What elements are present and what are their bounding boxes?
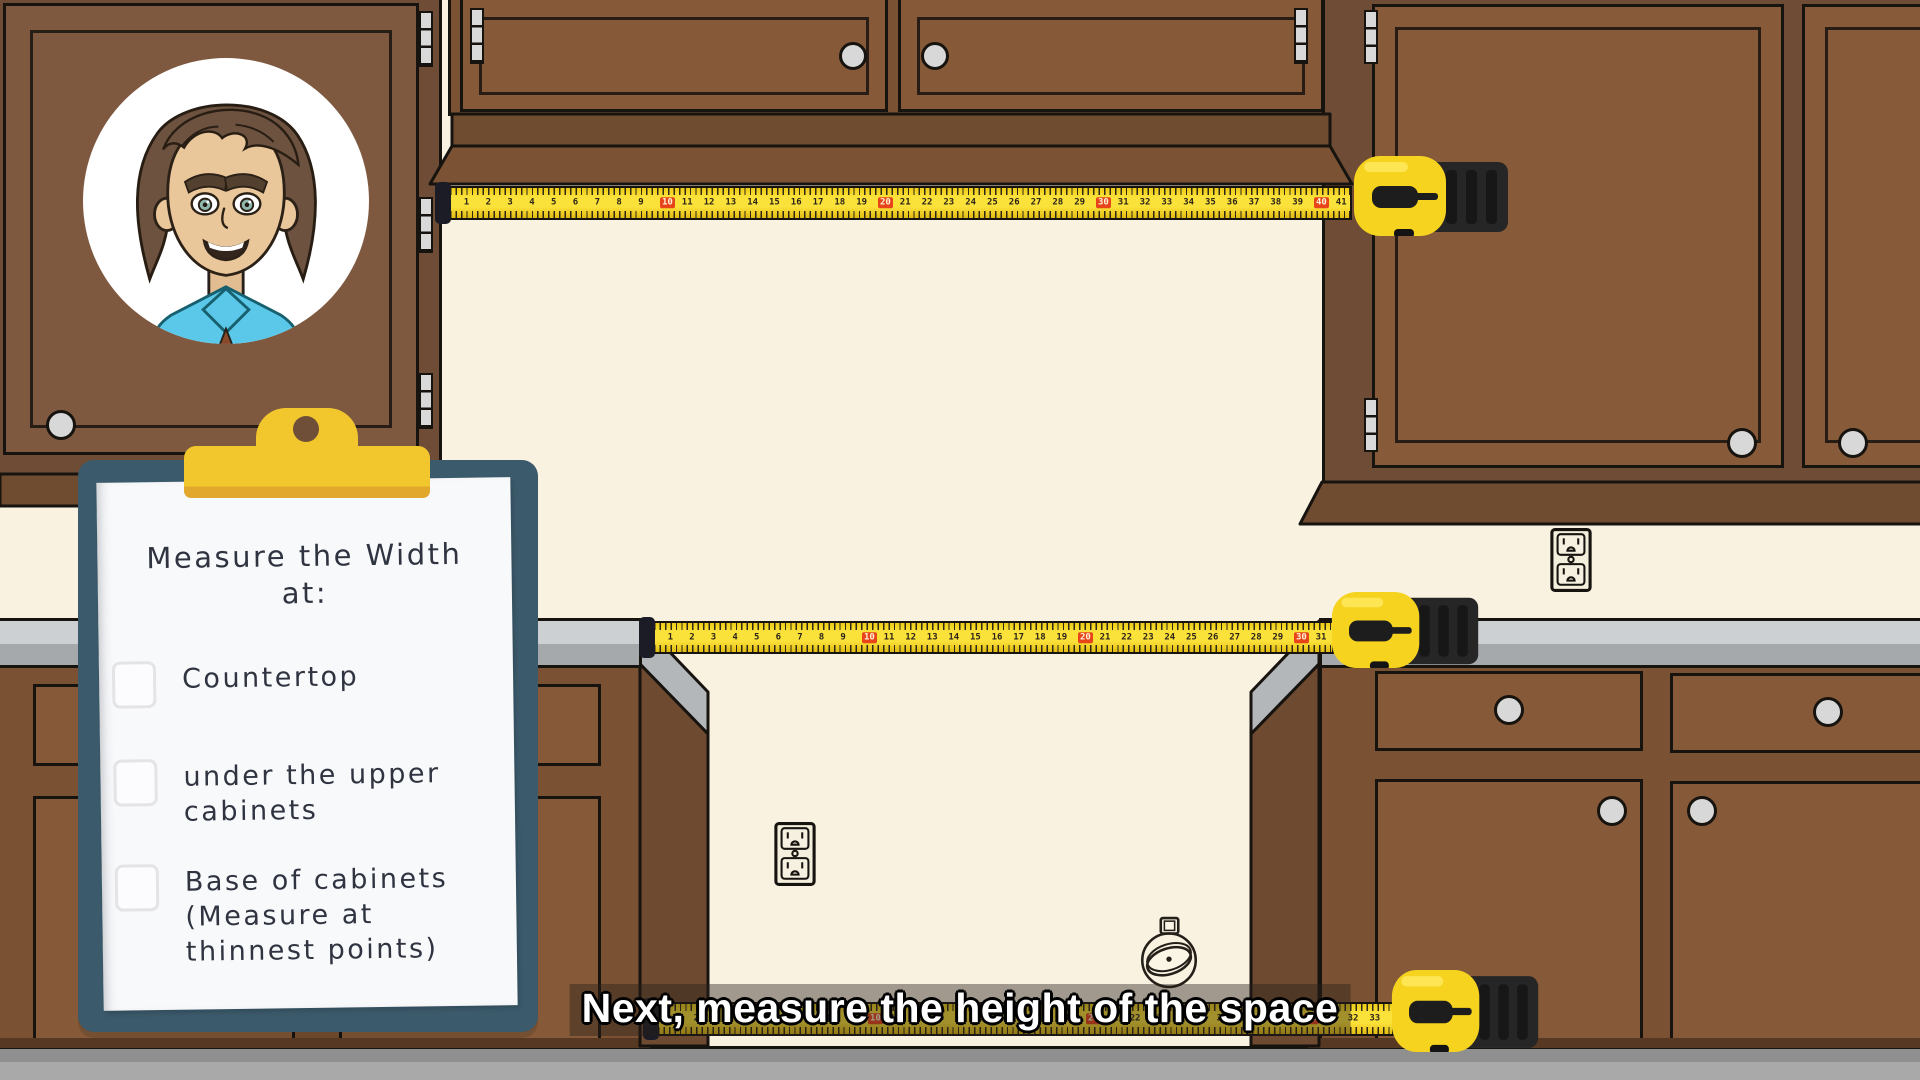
checklist-item-label: Countertop — [182, 658, 360, 696]
tape-number: 33 — [1369, 1014, 1380, 1023]
tape-number: 37 — [1249, 198, 1260, 207]
tape-number: 25 — [1186, 633, 1197, 642]
tape-coil-icon — [1136, 916, 1202, 990]
tape-number: 16 — [791, 198, 802, 207]
tape-number: 4 — [529, 198, 534, 207]
tape-hook — [435, 182, 451, 224]
tape-number: 24 — [965, 198, 976, 207]
tape-number: 17 — [813, 198, 824, 207]
checklist-item-countertop: Countertop — [112, 658, 360, 708]
tape-number: 12 — [905, 633, 916, 642]
tape-number: 19 — [856, 198, 867, 207]
tape-number: 5 — [754, 633, 759, 642]
tape-number: 2 — [486, 198, 491, 207]
avatar — [83, 58, 369, 344]
tape-number: 15 — [970, 633, 981, 642]
tape-number: 20 — [1078, 632, 1093, 643]
tape-number: 20 — [878, 197, 893, 208]
tape-number: 21 — [900, 198, 911, 207]
tape-body — [1330, 592, 1482, 668]
tape-hook — [639, 617, 655, 658]
tape-number: 22 — [1121, 633, 1132, 642]
tape-body — [1390, 970, 1542, 1052]
checkbox — [112, 661, 157, 709]
tape-number: 30 — [1096, 197, 1111, 208]
tape-number: 40 — [1314, 197, 1329, 208]
scene: Measure the Width at: Countertop under t… — [0, 0, 1920, 1080]
tape-number: 27 — [1031, 198, 1042, 207]
tape-number: 1 — [668, 633, 673, 642]
tape-number: 4 — [732, 633, 737, 642]
tape-number: 30 — [1294, 632, 1309, 643]
checkbox — [115, 864, 160, 912]
tape-number: 41 — [1336, 198, 1347, 207]
tape-number: 31 — [1118, 198, 1129, 207]
tape-number: 11 — [682, 198, 693, 207]
tape-number: 10 — [862, 632, 877, 643]
tape-number: 6 — [573, 198, 578, 207]
tape-number: 16 — [992, 633, 1003, 642]
clipboard-clip-hole — [293, 416, 319, 442]
tape-number: 32 — [1140, 198, 1151, 207]
wall-outlet-icon — [1550, 528, 1592, 592]
tape-number: 23 — [1143, 633, 1154, 642]
tape-number: 35 — [1205, 198, 1216, 207]
tape-number: 9 — [840, 633, 845, 642]
tape-number: 6 — [776, 633, 781, 642]
tape-number: 39 — [1292, 198, 1303, 207]
tape-number: 3 — [507, 198, 512, 207]
tape-number: 38 — [1270, 198, 1281, 207]
tape-number: 23 — [943, 198, 954, 207]
tape-number: 21 — [1100, 633, 1111, 642]
tape-measure-band: 1234567891011121314151617181920212223242… — [652, 621, 1334, 654]
tape-number: 7 — [595, 198, 600, 207]
clipboard-paper: Measure the Width at: Countertop under t… — [96, 477, 517, 1011]
tape-number: 25 — [987, 198, 998, 207]
tape-number: 29 — [1074, 198, 1085, 207]
tape-number: 26 — [1009, 198, 1020, 207]
subtitle-caption: Next, measure the height of the space — [570, 984, 1351, 1036]
checklist-item-under-upper-cabinets: under the upper cabinets — [113, 755, 441, 831]
tape-number: 14 — [948, 633, 959, 642]
tape-number: 33 — [1161, 198, 1172, 207]
tape-number: 18 — [1035, 633, 1046, 642]
tape-number: 1 — [464, 198, 469, 207]
tape-number: 7 — [797, 633, 802, 642]
tape-number: 9 — [638, 198, 643, 207]
tape-number: 28 — [1251, 633, 1262, 642]
tape-number: 28 — [1052, 198, 1063, 207]
tape-number: 31 — [1316, 633, 1327, 642]
tape-measure-band: 1234567891011121314151617181920212223242… — [448, 186, 1352, 220]
tape-number: 5 — [551, 198, 556, 207]
checklist-item-label: under the upper cabinets — [183, 755, 441, 830]
checklist-title: Measure the Width at: — [97, 535, 512, 615]
tape-body — [1352, 156, 1512, 236]
subtitle-caption-text: Next, measure the height of the space — [582, 985, 1339, 1031]
tape-number: 26 — [1208, 633, 1219, 642]
tape-number: 2 — [689, 633, 694, 642]
tape-number: 13 — [725, 198, 736, 207]
tape-number: 8 — [616, 198, 621, 207]
tape-number: 14 — [747, 198, 758, 207]
avatar-illustration — [83, 58, 369, 344]
tape-number: 24 — [1164, 633, 1175, 642]
tape-number: 17 — [1013, 633, 1024, 642]
tape-number: 36 — [1227, 198, 1238, 207]
clipboard: Measure the Width at: Countertop under t… — [78, 460, 538, 1032]
wall-outlet-icon — [772, 822, 818, 886]
checklist-item-label: Base of cabinets (Measure at thinnest po… — [185, 860, 450, 970]
tape-number: 29 — [1272, 633, 1283, 642]
tape-number: 10 — [660, 197, 675, 208]
tape-number: 12 — [704, 198, 715, 207]
tape-number: 19 — [1056, 633, 1067, 642]
tape-number: 15 — [769, 198, 780, 207]
checklist-item-base-of-cabinets: Base of cabinets (Measure at thinnest po… — [115, 860, 450, 971]
tape-number: 22 — [922, 198, 933, 207]
tape-number: 8 — [819, 633, 824, 642]
checkbox — [113, 759, 158, 807]
tape-number: 11 — [884, 633, 895, 642]
tape-number: 3 — [711, 633, 716, 642]
tape-number: 13 — [927, 633, 938, 642]
tape-number: 27 — [1229, 633, 1240, 642]
tape-number: 18 — [834, 198, 845, 207]
clipboard-clip — [184, 446, 430, 498]
tape-number: 34 — [1183, 198, 1194, 207]
